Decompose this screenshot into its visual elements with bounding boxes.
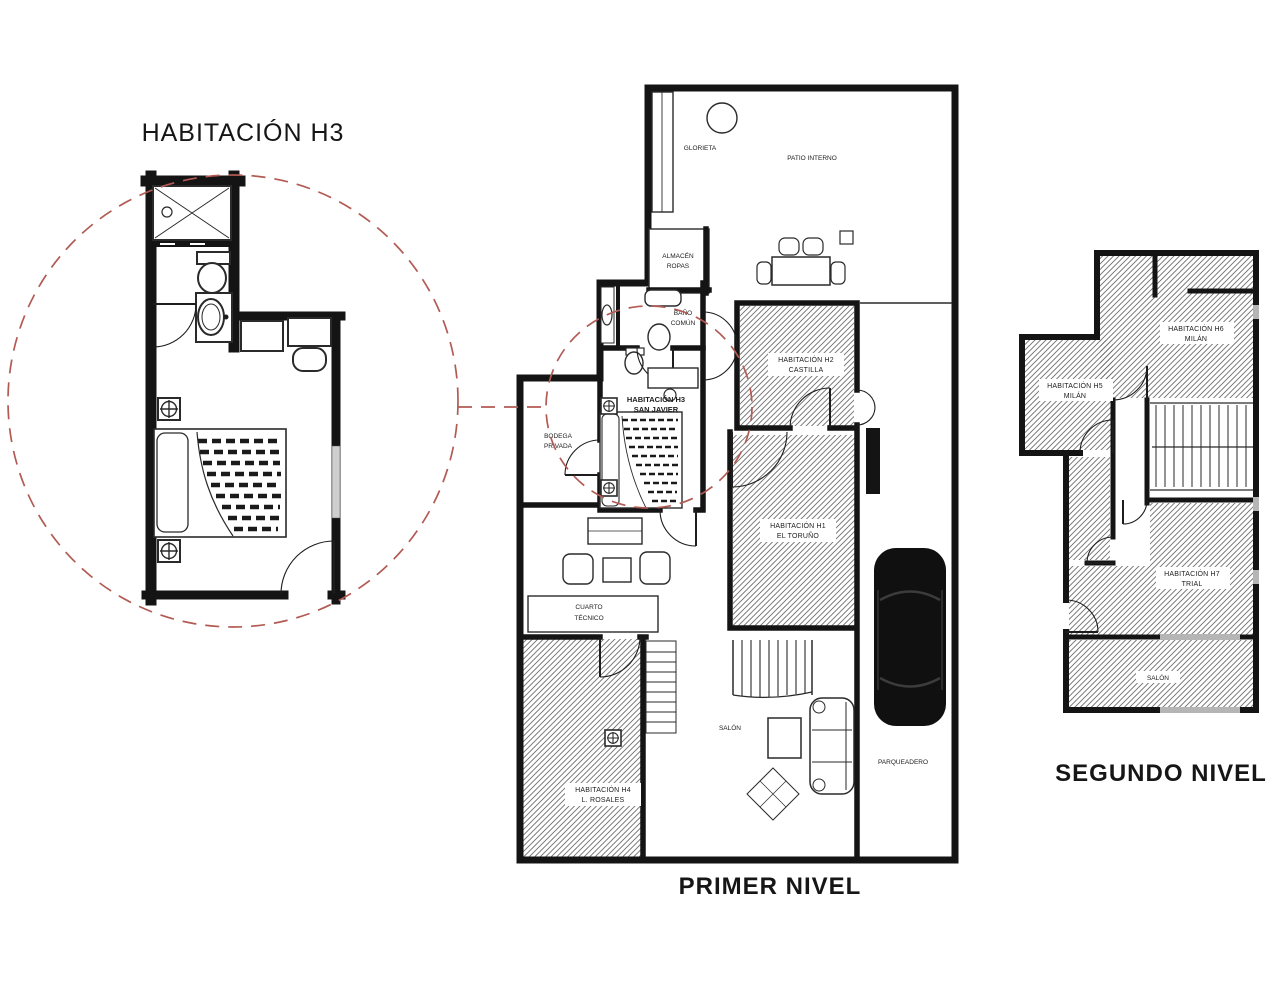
patio-circle [707, 103, 737, 133]
stairs-icon [733, 640, 812, 697]
rug-icon [747, 768, 799, 820]
double-door-arcs [703, 312, 737, 380]
toilet-icon [197, 252, 230, 293]
window [1160, 634, 1240, 640]
room-label: MILÁN [1185, 334, 1207, 343]
dining-table-icon [757, 231, 853, 285]
room-label: HABITACIÓN H1 [770, 521, 826, 530]
cabinet [241, 321, 283, 351]
bed-icon [154, 429, 286, 537]
detail-title: HABITACIÓN H3 [142, 118, 345, 147]
level1-plan: GLORIETA PATIO INTERNO ALMACÉN ROPAS BAÑ… [520, 88, 955, 860]
pillar [866, 428, 880, 494]
room-label: GLORIETA [684, 145, 717, 152]
corridor-hatch [1069, 457, 1110, 560]
car-icon [874, 548, 946, 726]
window [332, 446, 340, 518]
garage-door-arc [857, 390, 875, 425]
window [1253, 497, 1259, 511]
desk [288, 318, 331, 346]
stairs2-icon [1150, 403, 1253, 490]
h3-door-arc [660, 510, 696, 546]
shower-icon [153, 186, 231, 247]
level2-plan: HABITACIÓN H6 MILÁN HABITACIÓN H5 MILÁN … [1022, 253, 1259, 713]
room-label: MILÁN [1064, 391, 1086, 400]
floorplan-canvas: HABITACIÓN H3 PRIMER NIVEL SEGUNDO NIVEL [0, 0, 1275, 985]
level2-title: SEGUNDO NIVEL [1055, 760, 1267, 787]
level1-title: PRIMER NIVEL [679, 873, 862, 900]
electrical-symbol [158, 398, 180, 420]
room-label: ALMACÉN [662, 251, 694, 260]
lattice [652, 92, 673, 212]
room-label: CASTILLA [789, 367, 824, 374]
room-label: BODEGA [544, 433, 572, 440]
electrical-symbol [601, 480, 617, 496]
room-label: HABITACIÓN H2 [778, 355, 834, 364]
electrical-symbol [158, 540, 180, 562]
room-label: SALÓN [719, 723, 741, 732]
detail-plan [146, 176, 341, 600]
room-label: TRIAL [1182, 581, 1203, 588]
room-label: HABITACIÓN H5 [1047, 381, 1103, 390]
room-label: HABITACIÓN H4 [575, 785, 631, 794]
room-label: CUARTO [575, 604, 602, 611]
utility-box [528, 596, 658, 632]
room-label: EL TORUÑO [777, 531, 819, 540]
room-h4-hatch [522, 639, 641, 858]
window [1253, 570, 1259, 584]
room-label: HABITACIÓN H6 [1168, 324, 1224, 333]
small-stairs-icon [646, 641, 676, 733]
room-label: SAN JAVIER [634, 405, 679, 414]
room-label: PRIVADA [544, 443, 573, 450]
room-label: SALÓN [1147, 673, 1169, 682]
chair-icon [293, 348, 326, 371]
window [1160, 707, 1240, 713]
lounge-furniture [563, 518, 670, 584]
bath-door-arc [153, 304, 196, 347]
room-label: PARQUEADERO [878, 759, 928, 766]
room-label: L. ROSALES [582, 797, 625, 804]
entry-door-arc [281, 541, 334, 594]
room-label: TÉCNICO [574, 613, 603, 622]
hC-door-arc [1123, 500, 1147, 524]
room-label: COMÚN [671, 318, 696, 327]
shared-bath [601, 285, 681, 374]
room-label: HABITACIÓN H7 [1164, 569, 1220, 578]
coffee-table-icon [768, 718, 801, 758]
room-label: PATIO INTERNO [787, 155, 837, 162]
room-label: HABITACIÓN H3 [627, 395, 685, 404]
window [1253, 305, 1259, 319]
sofa-icon [810, 698, 854, 794]
sink-icon [196, 293, 232, 342]
room-label: ROPAS [667, 263, 690, 270]
room-hC-hatch2 [1069, 566, 1150, 637]
electrical-symbol [605, 730, 621, 746]
electrical-symbol [601, 398, 617, 414]
storage-closet [649, 229, 709, 293]
